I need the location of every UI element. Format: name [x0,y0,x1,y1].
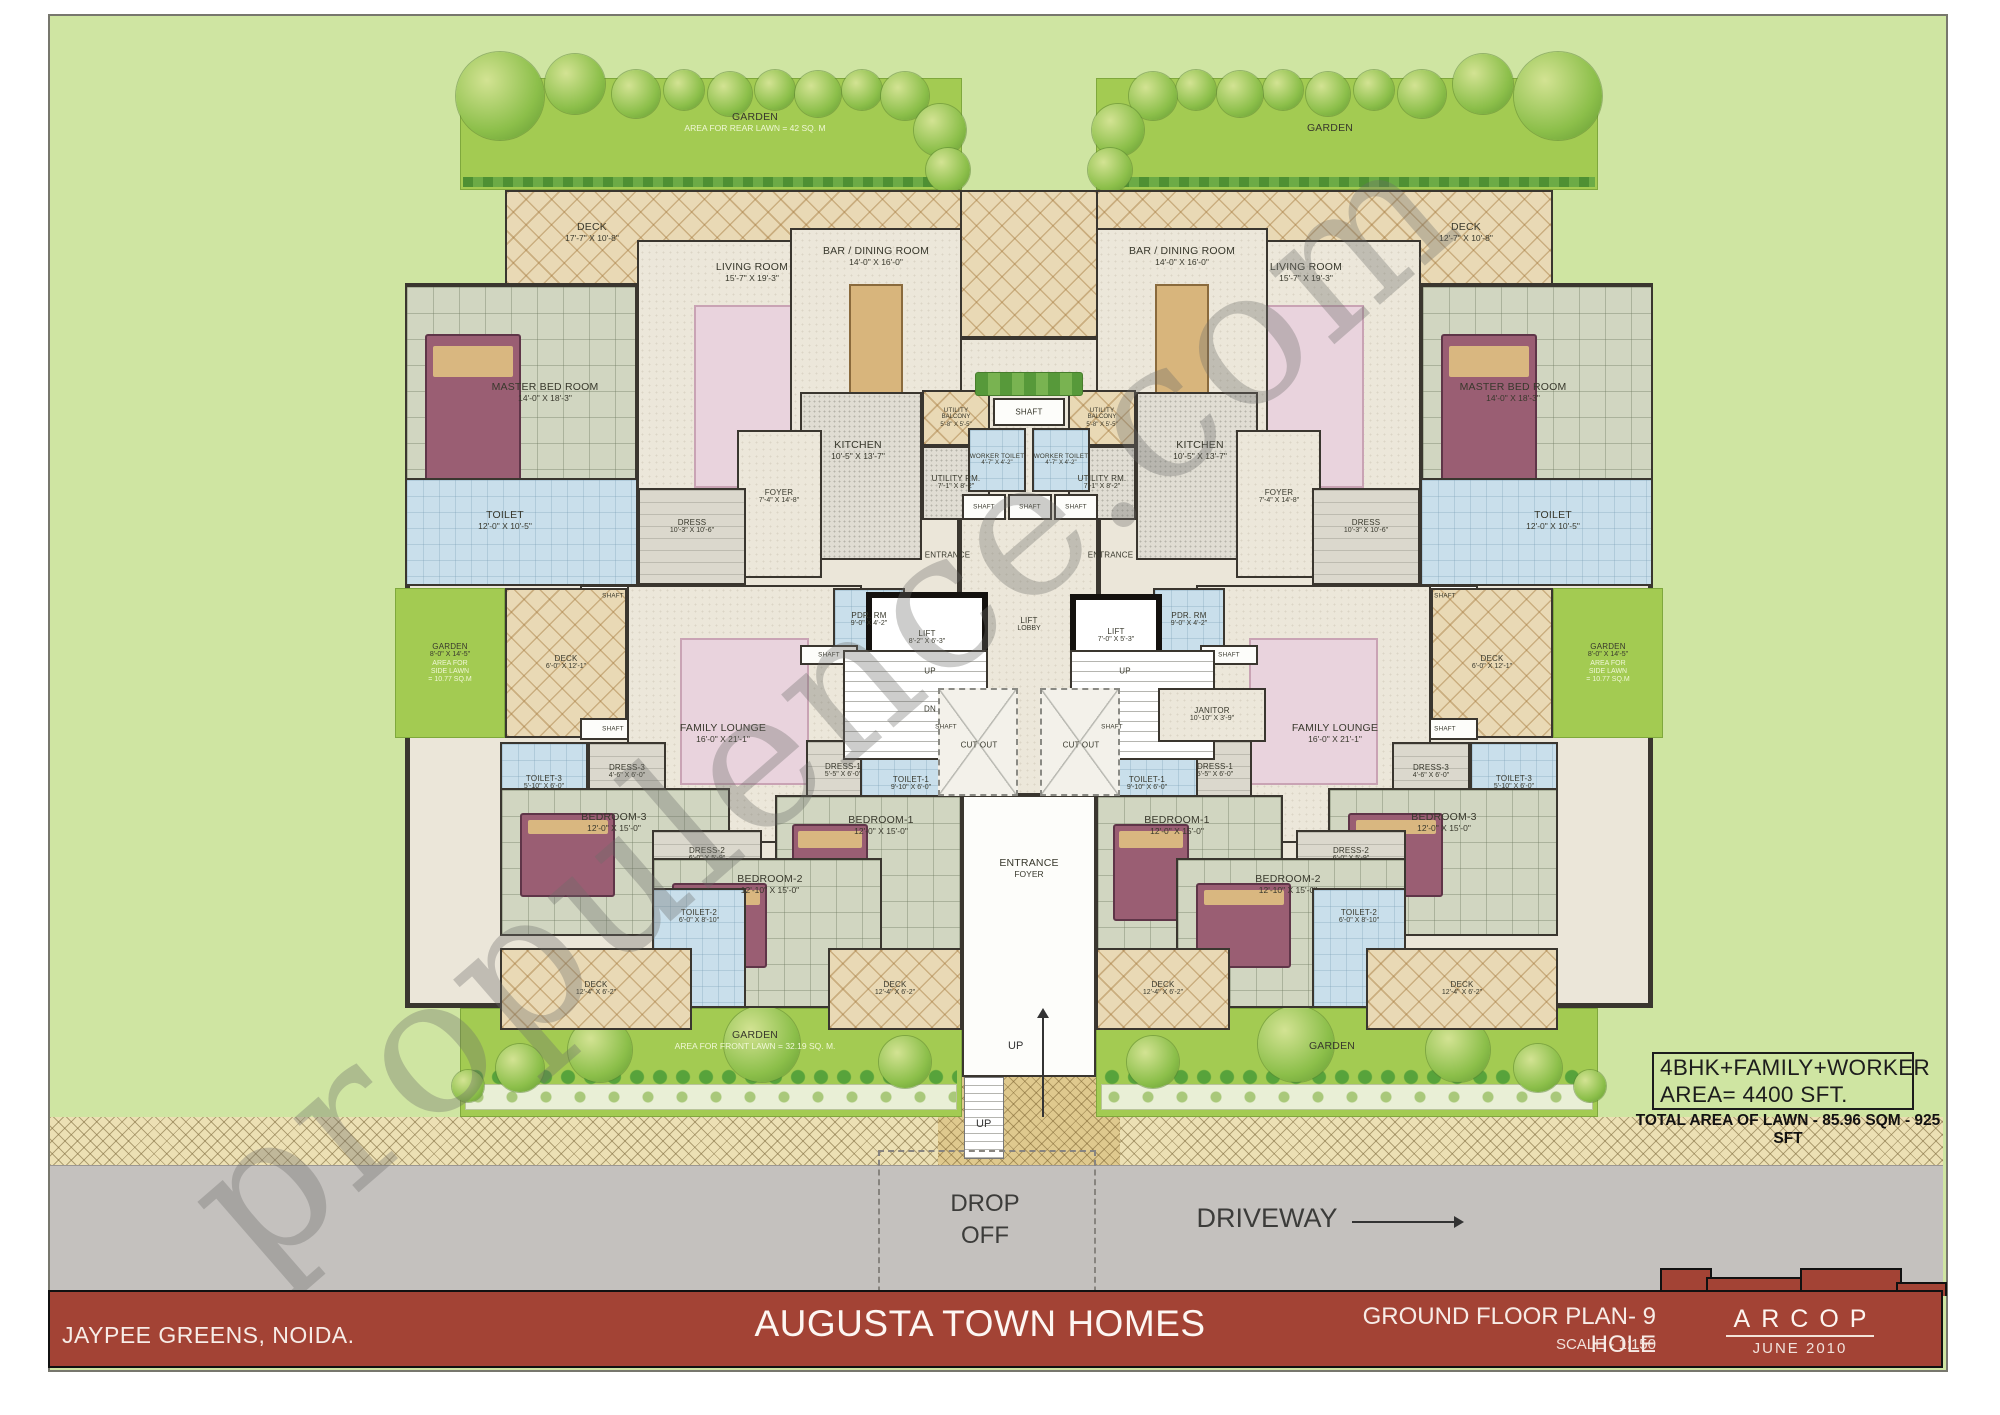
label-toilet-master-right: TOILET12'-0" X 10'-5" [1526,509,1580,531]
tree-icon [664,70,704,110]
label-dress-3: DRESS-34'-6" X 6'-0" [609,763,645,781]
label-cut-out-left: CUT OUT [961,740,998,749]
label-shaft-3: SHAFT [1065,503,1087,510]
room-toilet-master-right [1420,478,1653,586]
label-lift-left: LIFT8'-2" X 6'-3" [909,629,945,647]
label-foyer: FOYER7'-4" X 14'-8" [759,488,799,506]
label-dress-2: DRESS-26'-0" X 5'-9" [689,846,725,864]
label-bedroom-3: BEDROOM-312'-0" X 15'-0" [581,811,646,833]
label-bedroom-2: BEDROOM-212'-10" X 15'-0" [737,873,802,895]
tree-icon [1263,70,1303,110]
tree-icon [1514,52,1602,140]
scale-label: SCALE - 1:150 [1300,1336,1656,1353]
label-utility-balcony-right: UTILITYBALCONY5'-8" X 5'-5" [1086,407,1117,429]
tree-icon [452,1070,484,1102]
label-garden-front-right: GARDEN [1309,1040,1355,1052]
label-bedroom-1: BEDROOM-112'-0" X 15'-0" [848,814,913,836]
label-worker-toilet-left: WORKER TOILET4'-7" X 4'-2" [970,453,1025,468]
label-bedroom-2-right: BEDROOM-212'-10" X 15'-0" [1255,873,1320,895]
label-master-bed-room-right: MASTER BED ROOM14'-0" X 18'-3" [1460,381,1567,403]
tree-icon [842,70,882,110]
tree-icon [1127,1036,1179,1088]
tree-icon [496,1044,544,1092]
sheet-title: AUGUSTA TOWN HOMES [600,1303,1360,1345]
label-toilet-1: TOILET-19'-10" X 6'-0" [891,775,931,793]
label-dn-left: DN [924,704,936,713]
tree-icon [545,54,605,114]
room-dress-master [638,488,746,585]
label-shaft-top: SHAFT [1015,407,1042,416]
room-dress-master-right [1312,488,1420,585]
label-shaft-a-right: SHAFT [1434,592,1456,599]
drop-off-line1: DROP [905,1188,1065,1220]
label-deck-bottom-outer-right: DECK12'-4" X 6'-2" [1442,980,1482,998]
path-strip [465,1084,957,1110]
label-worker-toilet-right: WORKER TOILET4'-7" X 4'-2" [1034,453,1089,468]
label-shaft-c: SHAFT [818,651,840,658]
up-arrow-icon [1037,1008,1049,1120]
label-deck-side-right: DECK6'-0" X 12'-1" [1472,654,1512,672]
label-shaft-b: SHAFT [602,725,624,732]
label-shaft-1: SHAFT [973,503,995,510]
tree-icon [755,70,795,110]
label-garden-front-left: GARDENAREA FOR FRONT LAWN = 32.19 SQ. M. [675,1029,836,1051]
drop-off-label: DROP OFF [905,1188,1065,1253]
label-lift-right: LIFT7'-0" X 5'-3" [1098,627,1134,645]
firm-underline [1726,1335,1874,1337]
drop-off-line2: OFF [905,1220,1065,1252]
label-deck-side: DECK6'-0" X 12'-1" [546,654,586,672]
up-label: UP [976,1118,991,1130]
label-shaft-d: SHAFT [935,723,957,730]
tree-icon [1354,70,1394,110]
label-family-lounge-right: FAMILY LOUNGE16'-0" X 21'-1" [1292,722,1378,744]
path-strip [1101,1084,1593,1110]
tree-icon [456,52,544,140]
label-kitchen: KITCHEN10'-5" X 13'-7" [831,439,885,461]
firm-logo: ARCOP JUNE 2010 [1700,1305,1900,1357]
label-dress-1-right: DRESS-15'-5" X 6'-0" [1197,762,1233,780]
label-dress-2-right: DRESS-26'-0" X 5'-9" [1333,846,1369,864]
room-entrance-foyer [962,795,1096,1077]
label-garden-side-right: GARDEN8'-0" X 14'-5"AREA FORSIDE LAWN= 1… [1586,642,1629,684]
table-icon [1155,284,1209,397]
rug-icon [1249,638,1378,785]
tree-icon [1088,148,1132,192]
label-dress-master-right: DRESS10'-3" X 10'-6" [1344,518,1388,536]
label-shaft-b-right: SHAFT [1434,725,1456,732]
label-utility-rm-right: UTILITY RM.7'-1" X 8'-2" [1078,474,1127,492]
unit-area-label: AREA= 4400 SFT. [1660,1082,1906,1109]
tree-icon [879,1036,931,1088]
room-hedge-row [975,372,1083,396]
lawn-total-label: TOTAL AREA OF LAWN - 85.96 SQM - 925 SFT [1628,1112,1948,1148]
label-shaft-c-right: SHAFT [1218,651,1240,658]
label-janitor: JANITOR10'-10" X 3'-9" [1190,706,1234,724]
tree-icon [1176,70,1216,110]
label-cut-out-right: CUT OUT [1063,740,1100,749]
label-utility-balcony: UTILITYBALCONY5'-8" X 5'-5" [940,407,971,429]
label-toilet-master: TOILET12'-0" X 10'-5" [478,509,532,531]
label-toilet-1-right: TOILET-19'-10" X 6'-0" [1127,775,1167,793]
label-master-bed-room: MASTER BED ROOM14'-0" X 18'-3" [492,381,599,403]
label-utility-rm: UTILITY RM.7'-1" X 8'-2" [932,474,981,492]
label-dress-master: DRESS10'-3" X 10'-6" [670,518,714,536]
project-name: JAYPEE GREENS, NOIDA. [62,1322,355,1349]
label-up-right: UP [1119,666,1131,675]
label-up-left: UP [924,666,936,675]
label-entrance-right: ENTRANCE [1088,550,1134,559]
tree-icon [1217,71,1263,117]
label-toilet-3-right: TOILET-35'-10" X 6'-0" [1494,774,1534,792]
tree-icon [708,72,752,116]
label-deck-bottom-inner: DECK12'-4" X 6'-2" [875,980,915,998]
label-pdr-rm-right: PDR. RM9'-0" X 4'-2" [1171,611,1207,629]
driveway-arrow-icon [1352,1216,1464,1228]
label-deck-top: DECK17'-7" X 10'-8" [565,221,619,243]
hedge-row-icon [1099,177,1595,187]
tree-icon [1514,1044,1562,1092]
date-label: JUNE 2010 [1700,1340,1900,1357]
rug-icon [680,638,809,785]
label-shaft-2: SHAFT [1019,503,1041,510]
tree-icon [926,148,970,192]
label-lift-lobby: LIFTLOBBY [1017,616,1040,634]
label-dress-3-right: DRESS-34'-6" X 6'-0" [1413,763,1449,781]
label-toilet-2: TOILET-26'-0" X 8'-10" [679,908,719,926]
label-deck-bottom-inner-right: DECK12'-4" X 6'-2" [1143,980,1183,998]
label-garden-rear-left: GARDENAREA FOR REAR LAWN = 42 SQ. M [684,111,825,133]
label-garden-side: GARDEN8'-0" X 14'-5"AREA FORSIDE LAWN= 1… [428,642,471,684]
driveway-label: DRIVEWAY [1192,1203,1342,1234]
tree-icon [1398,70,1446,118]
label-dress-1: DRESS-15'-5" X 6'-0" [825,762,861,780]
tree-icon [1092,104,1144,156]
label-toilet-3: TOILET-35'-10" X 6'-0" [524,774,564,792]
label-shaft-d-right: SHAFT [1101,723,1123,730]
label-bar-dining-room: BAR / DINING ROOM14'-0" X 16'-0" [823,245,929,267]
hedge-row-icon [463,177,959,187]
label-pdr-rm: PDR. RM9'-0" X 4'-2" [851,611,887,629]
label-deck-bottom-outer: DECK12'-4" X 6'-2" [576,980,616,998]
tree-icon [1306,72,1350,116]
label-bar-dining-room-right: BAR / DINING ROOM14'-0" X 16'-0" [1129,245,1235,267]
label-bedroom-1-right: BEDROOM-112'-0" X 15'-0" [1144,814,1209,836]
label-entrance-foyer: ENTRANCEFOYER [999,857,1058,879]
label-foyer-right: FOYER7'-4" X 14'-8" [1259,488,1299,506]
label-garden-rear-right: GARDEN [1307,122,1353,134]
label-bedroom-3-right: BEDROOM-312'-0" X 15'-0" [1411,811,1476,833]
tree-icon [1574,1070,1606,1102]
label-shaft-a: SHAFT [602,592,624,599]
up-label: UP [1008,1040,1023,1052]
label-family-lounge: FAMILY LOUNGE16'-0" X 21'-1" [680,722,766,744]
label-living-room-right: LIVING ROOM15'-7" X 19'-3" [1270,261,1342,283]
firm-name: ARCOP [1700,1305,1900,1334]
label-kitchen-right: KITCHEN10'-5" X 13'-7" [1173,439,1227,461]
unit-type-label: 4BHK+FAMILY+WORKER [1660,1055,1906,1082]
label-living-room: LIVING ROOM15'-7" X 19'-3" [716,261,788,283]
table-icon [849,284,903,397]
unit-info-box: 4BHK+FAMILY+WORKER AREA= 4400 SFT. [1652,1052,1914,1110]
room-toilet-master [405,478,638,586]
label-entrance-left: ENTRANCE [925,550,971,559]
tree-icon [612,70,660,118]
label-deck-top-right: DECK12'-7" X 10'-8" [1439,221,1493,243]
tree-icon [1453,54,1513,114]
label-toilet-2-right: TOILET-26'-0" X 8'-10" [1339,908,1379,926]
